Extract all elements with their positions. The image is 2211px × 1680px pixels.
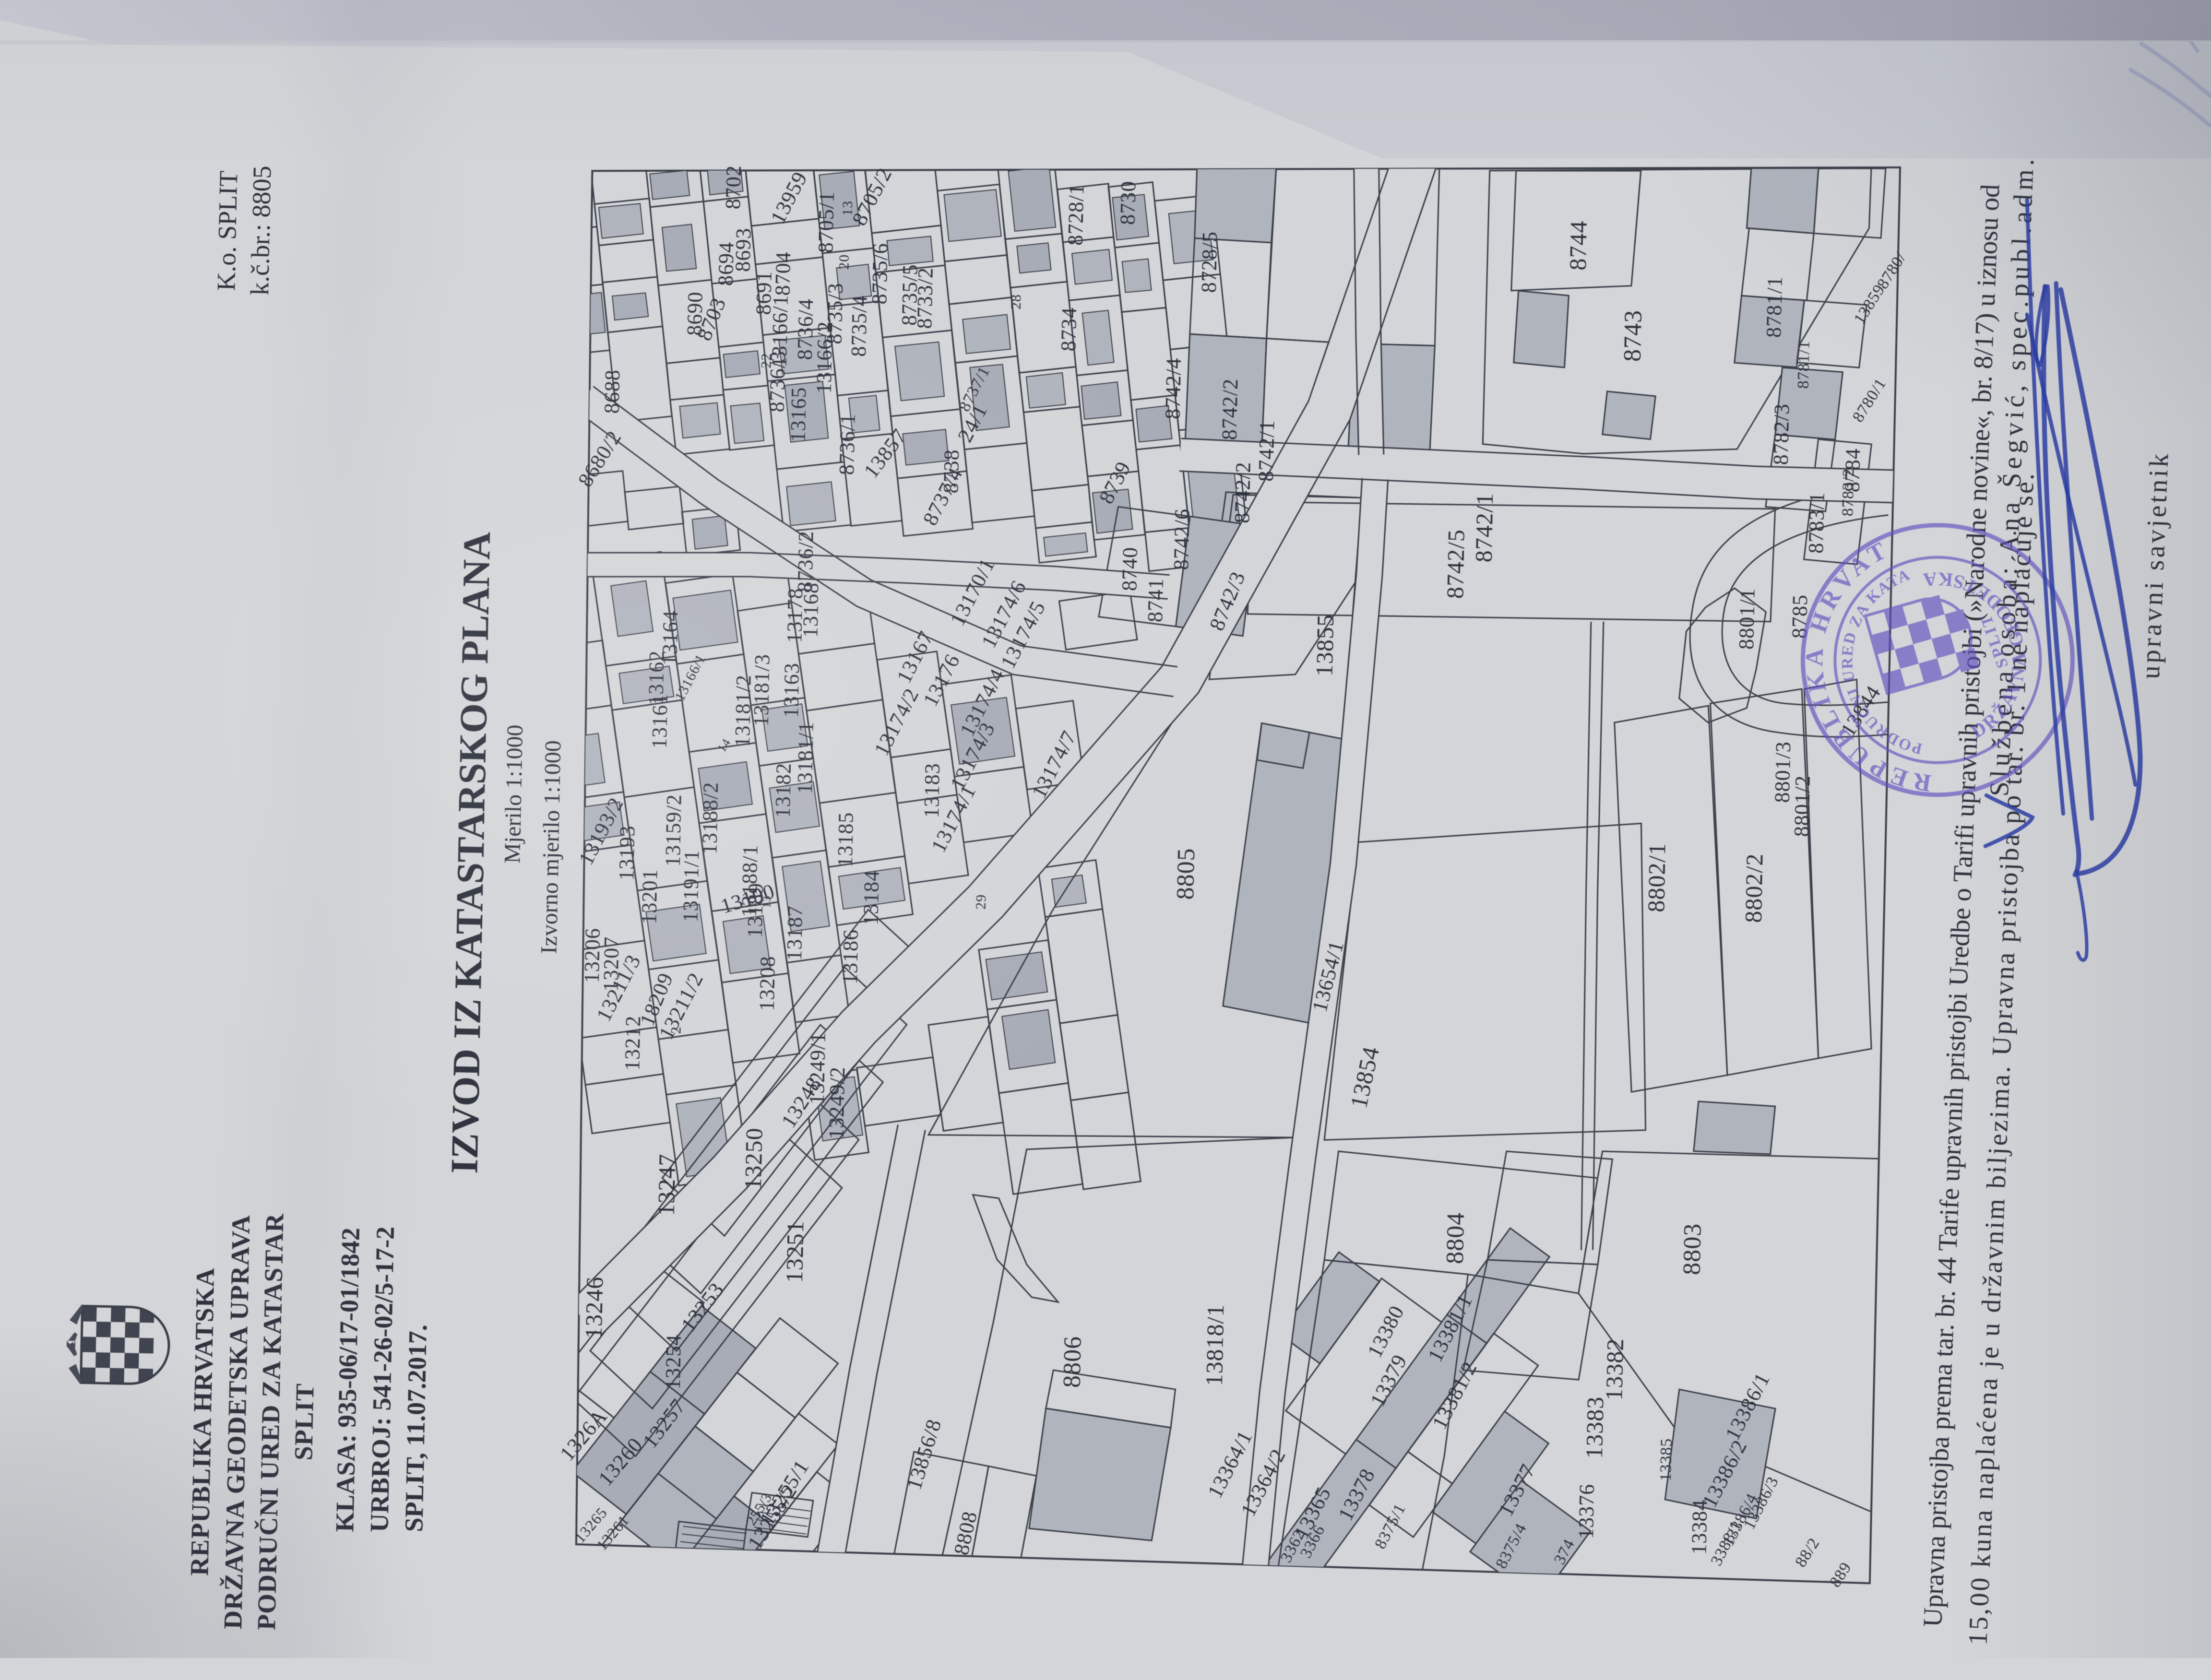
svg-text:13: 13 (840, 201, 856, 216)
svg-text:13163: 13163 (779, 663, 804, 718)
svg-text:8680/2: 8680/2 (573, 426, 626, 491)
svg-text:upravni savjetnik: upravni savjetnik (2136, 453, 2175, 679)
svg-text:13183: 13183 (919, 763, 944, 818)
svg-text:8742/5: 8742/5 (1441, 529, 1470, 599)
svg-text:8738: 8738 (939, 449, 963, 494)
svg-text:28: 28 (1008, 294, 1024, 310)
svg-text:8742/1: 8742/1 (1254, 420, 1279, 482)
svg-text:8802/2: 8802/2 (1739, 853, 1768, 923)
svg-text:8688: 8688 (600, 369, 624, 414)
svg-text:IZVOD IZ KATASTARSKOG PLANA: IZVOD IZ KATASTARSKOG PLANA (443, 531, 499, 1174)
svg-text:Mjerilo 1:1000: Mjerilo 1:1000 (499, 724, 528, 864)
svg-text:13189: 13189 (743, 882, 767, 938)
svg-text:8742/2: 8742/2 (1230, 461, 1255, 523)
svg-text:13182: 13182 (771, 763, 795, 818)
svg-text:13185: 13185 (833, 812, 857, 867)
svg-text:20: 20 (836, 254, 852, 270)
svg-text:8782/3: 8782/3 (1769, 403, 1794, 465)
svg-text:13166/1: 13166/1 (767, 295, 792, 367)
svg-text:Izvorno mjerilo 1:1000: Izvorno mjerilo 1:1000 (536, 740, 566, 954)
svg-text:13857: 13857 (859, 424, 912, 482)
svg-text:13254: 13254 (661, 1334, 685, 1390)
svg-text:13376: 13376 (1574, 1483, 1599, 1539)
svg-text:K.o. SPLIT: K.o. SPLIT (212, 170, 243, 291)
svg-text:3388/1: 3388/1 (1708, 1518, 1746, 1569)
svg-text:8742/2: 8742/2 (1217, 378, 1242, 440)
svg-text:8740: 8740 (1117, 546, 1142, 591)
svg-text:PODRUČNI URED ZA KATASTAR: PODRUČNI URED ZA KATASTAR (252, 1213, 289, 1631)
svg-text:13193: 13193 (615, 825, 639, 881)
svg-text:8730: 8730 (1116, 180, 1140, 225)
svg-text:13174/2: 13174/2 (869, 684, 924, 759)
svg-text:8803: 8803 (1678, 1223, 1707, 1275)
svg-text:8808: 8808 (949, 1509, 982, 1557)
svg-text:8744: 8744 (1564, 220, 1592, 271)
svg-text:29: 29 (973, 894, 989, 910)
svg-text:8734: 8734 (1057, 307, 1081, 352)
svg-text:13181/2: 13181/2 (730, 674, 755, 747)
svg-text:8705/1: 8705/1 (814, 191, 839, 253)
svg-text:URBROJ: 541-26-02/5-17-2: URBROJ: 541-26-02/5-17-2 (365, 1226, 400, 1533)
svg-text:8742/6: 8742/6 (1169, 508, 1194, 570)
svg-text:8735/4: 8735/4 (847, 295, 872, 357)
svg-text:13166/2: 13166/2 (812, 321, 837, 394)
svg-text:8780/1: 8780/1 (1849, 375, 1890, 426)
svg-text:13201: 13201 (637, 869, 662, 924)
svg-text:2: 2 (668, 1026, 684, 1034)
svg-text:8728/5: 8728/5 (1197, 231, 1222, 293)
svg-text:8783/2: 8783/2 (1839, 468, 1857, 516)
svg-text:13188/2: 13188/2 (698, 781, 723, 854)
svg-text:DRŽAVNA GEODETSKA UPRAVA: DRŽAVNA GEODETSKA UPRAVA (218, 1214, 255, 1629)
svg-text:13384: 13384 (1687, 1499, 1712, 1555)
svg-text:889: 889 (1826, 1559, 1855, 1590)
svg-text:13165: 13165 (786, 387, 810, 442)
svg-text:13251: 13251 (781, 1220, 809, 1283)
svg-text:13385: 13385 (1657, 1438, 1676, 1481)
svg-text:13959: 13959 (766, 168, 812, 228)
svg-text:8735/6: 8735/6 (868, 243, 892, 305)
svg-text:8802/1: 8802/1 (1642, 842, 1671, 912)
svg-text:13184: 13184 (859, 870, 883, 925)
svg-text:13382: 13382 (1600, 1338, 1629, 1401)
svg-text:13856/8: 13856/8 (902, 1416, 946, 1492)
svg-text:8736/1: 8736/1 (835, 413, 860, 475)
svg-text:13187: 13187 (782, 905, 807, 961)
svg-text:8805: 8805 (1172, 848, 1200, 900)
svg-text:8801/2: 8801/2 (1790, 775, 1815, 837)
svg-text:8742/1: 8742/1 (1470, 493, 1498, 563)
svg-text:8742/4: 8742/4 (1161, 357, 1186, 419)
svg-text:8804: 8804 (1441, 1212, 1470, 1264)
svg-text:8728/1: 8728/1 (1063, 184, 1088, 246)
svg-text:13383: 13383 (1581, 1396, 1609, 1459)
svg-text:SPLIT: SPLIT (289, 1383, 319, 1461)
svg-text:8781/1: 8781/1 (1795, 340, 1813, 389)
svg-text:8806: 8806 (1058, 1336, 1087, 1388)
svg-text:13250: 13250 (739, 1127, 768, 1190)
svg-text:8702: 8702 (721, 165, 746, 210)
svg-text:KLASA: 935-06/17-01/1842: KLASA: 935-06/17-01/1842 (330, 1227, 365, 1532)
svg-text:8781/1: 8781/1 (1762, 276, 1787, 338)
svg-text:13212: 13212 (620, 1015, 645, 1071)
svg-text:13818/1: 13818/1 (1201, 1304, 1229, 1386)
svg-text:8733/2: 8733/2 (913, 267, 938, 329)
svg-text:8783/1: 8783/1 (1804, 492, 1829, 554)
svg-text:13178: 13178 (783, 588, 807, 643)
svg-text:13246: 13246 (580, 1276, 608, 1339)
svg-text:13191/1: 13191/1 (678, 850, 703, 923)
svg-text:13249/2: 13249/2 (824, 1066, 849, 1139)
svg-text:13380: 13380 (1363, 1301, 1409, 1361)
svg-text:13855: 13855 (1310, 614, 1339, 677)
svg-text:13186: 13186 (838, 929, 862, 984)
svg-text:SPLIT, 11.07.2017.: SPLIT, 11.07.2017. (399, 1324, 432, 1532)
svg-text:8801/1: 8801/1 (1735, 588, 1759, 650)
svg-text:8693: 8693 (731, 227, 755, 272)
svg-text:8741: 8741 (1143, 578, 1168, 623)
svg-text:13161: 13161 (647, 693, 672, 749)
svg-text:8375/1: 8375/1 (1371, 1501, 1409, 1551)
svg-text:13208: 13208 (755, 956, 779, 1011)
svg-text:k.č.br.: 8805: k.č.br.: 8805 (245, 166, 276, 296)
svg-text:8704: 8704 (771, 251, 795, 296)
svg-text:13: 13 (761, 896, 774, 909)
svg-text:88/2: 88/2 (1792, 1535, 1823, 1570)
svg-text:REPUBLIKA HRVATSKA: REPUBLIKA HRVATSKA (185, 1267, 220, 1576)
svg-text:13247: 13247 (653, 1153, 681, 1216)
svg-text:13854: 13854 (1345, 1044, 1385, 1111)
svg-text:8743: 8743 (1619, 309, 1647, 362)
svg-text:13181/1: 13181/1 (793, 721, 818, 794)
svg-text:8780/: 8780/ (1874, 249, 1910, 292)
